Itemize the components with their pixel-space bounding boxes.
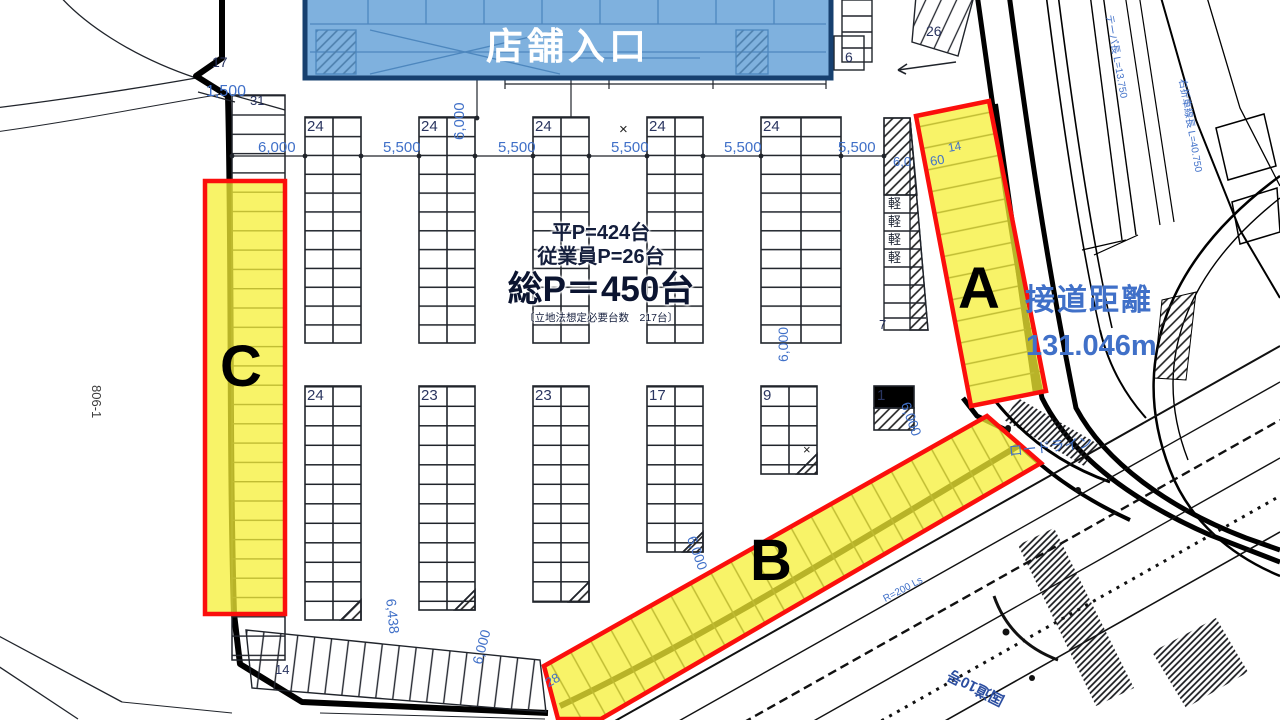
count-upper-left: 17	[212, 55, 228, 69]
dim-gap-partial: 6,0	[893, 155, 911, 168]
count-top-3: 24	[535, 119, 552, 134]
site-plan-page: 店舗入口 平P=424台 従業員P=26台 総P＝450台 〔立地法想定必要台数…	[0, 0, 1280, 720]
stat-flat: 平P=424台	[476, 222, 726, 246]
dim-gap-first: 6,000	[258, 140, 296, 155]
kei-label-3: 軽	[888, 233, 901, 246]
dim-gap-1: 5,500	[383, 140, 421, 155]
kei-label-1: 軽	[888, 197, 901, 210]
count-side-strip: 7	[879, 318, 886, 331]
count-top-right-strip: 26	[926, 24, 942, 38]
store-entrance-label: 店舗入口	[310, 16, 826, 70]
count-left-strip: 31	[250, 94, 264, 107]
count-entrance-box: 6	[845, 50, 853, 64]
dim-aisle-block5: 6,000	[776, 327, 790, 362]
dim-aisle-left: 6,438	[384, 598, 402, 634]
count-low-1: 24	[307, 388, 324, 403]
frontage-label: 接道距離	[1025, 286, 1153, 316]
count-low-2: 23	[421, 388, 438, 403]
zone-b-letter: B	[750, 532, 792, 590]
count-top-2: 24	[421, 119, 438, 134]
stat-staff: 従業員P=26台	[476, 246, 726, 270]
stat-total: 総P＝450台	[476, 269, 726, 310]
stat-note: 〔立地法想定必要台数 217台〕	[476, 312, 726, 324]
count-top-1: 24	[307, 119, 324, 134]
parking-stats: 平P=424台 従業員P=26台 総P＝450台 〔立地法想定必要台数 217台…	[476, 222, 726, 325]
count-zone-a-main: 60	[929, 152, 946, 167]
frontage-value: 131.046m	[1026, 332, 1157, 361]
dim-entrance-front: 6,000	[452, 102, 467, 140]
zone-c-letter: C	[220, 338, 262, 396]
zone-a-letter: A	[958, 260, 1000, 318]
count-low-5: 9	[763, 388, 771, 403]
kei-label-2: 軽	[888, 215, 901, 228]
count-top-4: 24	[649, 119, 666, 134]
count-low-3: 23	[535, 388, 552, 403]
cross-mark-1: ×	[619, 122, 628, 137]
dim-gap-3: 5,500	[611, 140, 649, 155]
dim-gap-5: 5,500	[838, 140, 876, 155]
cross-mark-2: ×	[803, 443, 811, 456]
kei-label-4: 軽	[888, 251, 901, 264]
dim-upper-left: 1,500	[206, 84, 246, 100]
entrance-side-boxes	[834, 0, 974, 74]
count-bottom-strip: 14	[275, 663, 289, 676]
bottom-stall-band	[246, 630, 546, 712]
count-top-5: 24	[763, 119, 780, 134]
count-low-6: 1	[877, 388, 885, 403]
parcel-number: 806-1	[90, 385, 103, 418]
count-zone-a-sub: 14	[947, 140, 962, 154]
dim-gap-2: 5,500	[498, 140, 536, 155]
dim-gap-4: 5,500	[724, 140, 762, 155]
count-low-4: 17	[649, 388, 666, 403]
